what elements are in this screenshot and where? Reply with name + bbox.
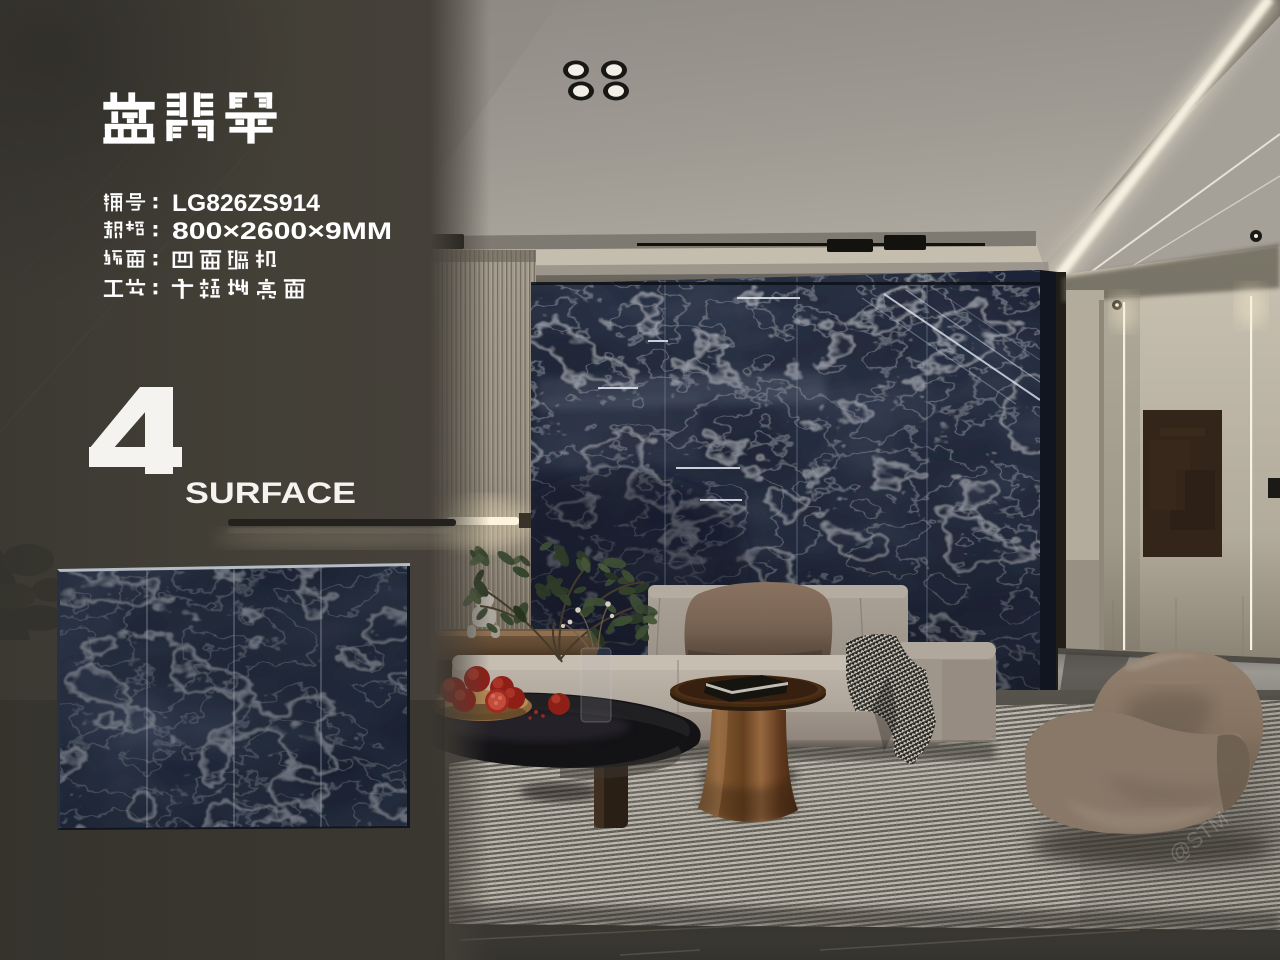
svg-text:LG826ZS914: LG826ZS914 [172, 190, 321, 217]
svg-text:800×2600×9MM: 800×2600×9MM [172, 218, 392, 245]
svg-text:SURFACE: SURFACE [185, 477, 356, 510]
